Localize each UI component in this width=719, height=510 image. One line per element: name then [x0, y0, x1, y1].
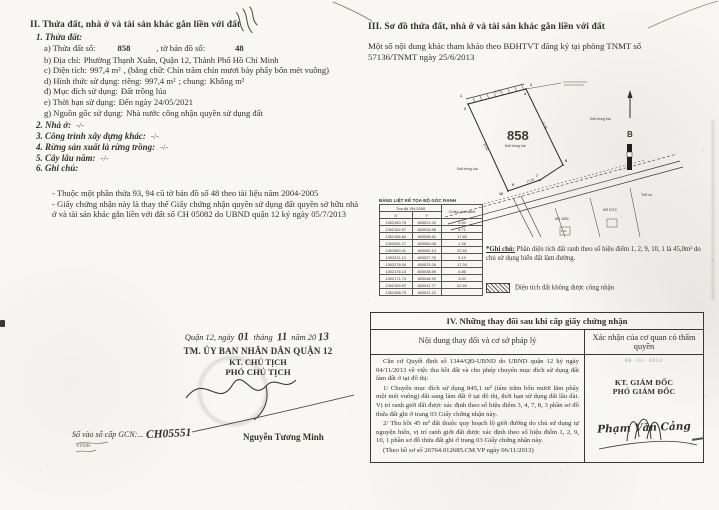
section-4-col-right-header: Xác nhận của cơ quan có thẩm quyền [585, 330, 703, 354]
field-label-2: , (bằng chữ: Chín trăm chín mươi bảy phẩ… [124, 65, 329, 75]
change-content-cell: Căn cứ Quyết định số 1344/QĐ-UBND do UBN… [371, 355, 585, 462]
field-line: b) Địa chỉ:Phường Thạnh Xuân, Quận 12, T… [44, 55, 362, 66]
subsection-line: 3. Công trình xây dựng khác:-/- [36, 131, 362, 142]
coord-y: 600041.77 [412, 282, 442, 289]
change-paragraph: (Theo hồ sơ số 26764.012685.CM.VP ngày 0… [376, 447, 579, 456]
map-sheet-label: , tờ bản đồ số: [156, 43, 205, 53]
subsection-value: -/- [160, 142, 168, 152]
field-value: 997,4 m² [145, 76, 176, 86]
note-line: - Thuộc một phần thửa 93, 94 cũ tờ bản đ… [52, 188, 362, 198]
section-3-intro: Một số nội dung khác tham khảo theo BĐHT… [368, 41, 688, 63]
coord-x: 1302168.75 [380, 289, 413, 296]
field-label-2: ; chung: [179, 76, 207, 86]
coords-row: 1302168.75 600021.23 [380, 289, 483, 296]
north-arrow-icon [628, 90, 633, 118]
coord-x: 1302169.92 [380, 282, 413, 289]
subsection-label: 4. Rừng sản xuất là rừng trồng: [36, 142, 155, 152]
neighbor-left-label: Đất trồng lúa [457, 167, 478, 171]
change-paragraph: Căn cứ Quyết định số 1344/QĐ-UBND do UBN… [376, 358, 579, 384]
coord-y: 600062.13 [412, 247, 442, 254]
authority-cell: 06 -11- 2013 KT. GIÁM ĐỐC PHÓ GIÁM ĐỐC P… [585, 355, 703, 462]
coords-row: 1302176.13 600038.59 5.86 [380, 268, 483, 275]
subsections: 2. Nhà ở:-/- 3. Công trình xây dựng khác… [36, 120, 362, 174]
coordinates-table: Tọa độ VN-2000 Chiều dài cạnh X Y 130216… [379, 204, 483, 296]
tho-cu-label: Thổ cư [641, 193, 653, 197]
field-value: Đất trồng lúa [121, 86, 166, 96]
subsection-value: -/- [101, 153, 109, 163]
coord-y: 600063.08 [412, 240, 442, 247]
hatched-strip [466, 84, 526, 104]
plot-fields: b) Địa chỉ:Phường Thạnh Xuân, Quận 12, T… [44, 55, 362, 119]
subsection-line: 2. Nhà ở:-/- [36, 120, 362, 131]
edge-length: 22.50 [442, 282, 483, 289]
authority-role: PHÓ GIÁM ĐỐC [585, 387, 703, 396]
handwritten-day: 01 [238, 331, 250, 344]
diagram-note-label: *Ghi chú: [486, 246, 515, 253]
svg-text:8: 8 [565, 159, 567, 163]
edge-length-left: 22.50 [482, 143, 489, 152]
handwritten-year: 13 [318, 331, 330, 344]
coord-y: 600021.33 [412, 219, 442, 226]
coord-y: 600028.58 [412, 226, 442, 233]
section-3: III. Sơ đồ thửa đất, nhà ở và tài sản kh… [368, 22, 712, 63]
field-value-2: Không m² [210, 76, 245, 86]
coords-length-header: Chiều dài cạnh [442, 205, 483, 219]
gcn-book-line: Số vào sổ cấp GCN:...CH05551 [72, 428, 192, 440]
coord-x: 1302162.57 [380, 226, 413, 233]
plot-number-label: a) Thửa đất số: [44, 43, 96, 53]
coord-x: 1302081.17 [380, 240, 413, 247]
coord-y: 600058.62 [412, 233, 442, 240]
diagram-legend: Diện tích đất không được công nhận [486, 283, 614, 293]
subsection-label: 6. Ghi chú: [36, 163, 78, 173]
field-label: d) Hình thức sử dụng: riêng: [44, 76, 142, 86]
subsection-label: 2. Nhà ở: [36, 120, 71, 130]
illegible-annotation [526, 82, 587, 89]
edge-length: 5.86 [442, 268, 483, 275]
coords-row: 1302083.41 600062.13 22.50 [380, 247, 483, 254]
coord-x: 1302176.13 [380, 268, 413, 275]
edge-length: 6.71 [442, 226, 483, 233]
field-label: đ) Mục đích sử dụng: [44, 86, 118, 96]
coord-x: 1302278.04 [380, 261, 413, 268]
edge-length: 1.26 [442, 240, 483, 247]
coord-x: 1302160.75 [380, 219, 413, 226]
coords-row: 1302278.04 600023.26 17.34 [380, 261, 483, 268]
svg-text:9: 9 [512, 183, 514, 187]
svg-text:10: 10 [499, 192, 503, 196]
month-label: tháng [254, 333, 273, 342]
field-line: e) Thời hạn sử dụng:Đến ngày 24/05/2021 [44, 97, 362, 108]
coord-y: 600027.76 [412, 254, 442, 261]
notes: - Thuộc một phần thửa 93, 94 cũ tờ bản đ… [52, 188, 362, 219]
coords-row: 1302081.17 600063.08 1.26 [380, 240, 483, 247]
subsection-label: 5. Cây lâu năm: [36, 153, 96, 163]
field-line: c) Diện tích:997,4 m², (bằng chữ: Chín t… [44, 65, 362, 76]
handwritten-month: 11 [276, 331, 287, 344]
coords-y-header: Y [412, 212, 442, 219]
section-4-title: IV. Những thay đổi sau khi cấp giấy chứn… [371, 313, 703, 330]
edge-length: 22.50 [442, 247, 483, 254]
house-label: 1 hộ [561, 229, 567, 233]
plot-heading: 1. Thửa đất: [36, 32, 362, 42]
kt-line: KT. CHỦ TỊCH [148, 358, 368, 367]
coords-row: 1302171.74 600048.93 3.00 [380, 275, 483, 282]
coord-y: 600038.59 [412, 268, 442, 275]
change-paragraph: 2/ Thu hồi 45 m² đất thuộc quy hoạch lộ … [376, 420, 579, 446]
committee-name: TM. ỦY BAN NHÂN DÂN QUẬN 12 [148, 346, 368, 356]
plot-number-value: 858 [118, 43, 131, 53]
plot-number-line: a) Thửa đất số:858, tờ bản đồ số:48 [44, 43, 362, 54]
svg-text:2: 2 [530, 83, 532, 87]
scan-speckles [0, 0, 1, 1]
note-line: - Giấy chứng nhận này là thay thế Giấy c… [52, 199, 362, 220]
hatch-swatch-icon [486, 283, 510, 293]
field-value: Nhà nước công nhận quyền sử dụng đất [126, 108, 263, 118]
field-label: b) Địa chỉ: [44, 55, 81, 65]
edge-mark-artifact [0, 320, 5, 327]
year-label: năm 20 [291, 333, 316, 342]
section-3-title: III. Sơ đồ thửa đất, nhà ở và tài sản kh… [368, 22, 712, 32]
subsection-line: 6. Ghi chú: [36, 163, 362, 174]
edge-length: 5.19 [442, 254, 483, 261]
subsection-label: 3. Công trình xây dựng khác: [36, 131, 146, 141]
edge-length [442, 289, 483, 296]
edge-length-top: 6.71 [494, 88, 501, 94]
field-line: g) Nguồn gốc sử dụng:Nhà nước công nhận … [44, 108, 362, 119]
field-line: đ) Mục đích sử dụng:Đất trồng lúa [44, 86, 362, 97]
svg-text:1: 1 [460, 94, 462, 98]
diagram-note: *Ghi chú: Phần diện tích đất ranh theo s… [486, 246, 712, 263]
svg-text:4: 4 [524, 92, 526, 96]
coordinates-table-title: BẢNG LIỆT KÊ TỌA ĐỘ GÓC RANH [379, 198, 483, 203]
clerk-note: VPĐK [76, 443, 91, 450]
scanned-land-certificate-page: II. Thửa đất, nhà ở và tài sản khác gắn … [0, 0, 719, 510]
authority-kt: KT. GIÁM ĐỐC [585, 378, 703, 387]
coords-x-header: X [380, 212, 413, 219]
coords-row: 1302169.92 600041.77 22.50 [380, 282, 483, 289]
neighbor-right-label: Đất trồng lúa [590, 117, 611, 121]
authority-stamp-date: 06 -11- 2013 [585, 359, 703, 364]
svg-text:3: 3 [464, 107, 466, 111]
field-value: 997,4 m² [90, 65, 121, 75]
place-label: Quận 12, ngày [185, 333, 235, 342]
edge-length: 2.00 [442, 219, 483, 226]
legend-text: Diện tích đất không được công nhận [515, 285, 614, 292]
role-line: PHÓ CHỦ TỊCH [148, 367, 368, 377]
coord-y: 600048.93 [412, 275, 442, 282]
field-line: d) Hình thức sử dụng: riêng:997,4 m²; ch… [44, 76, 362, 87]
field-label: e) Thời hạn sử dụng: [44, 97, 116, 107]
coords-row: 1302160.75 600021.33 2.00 [380, 219, 483, 226]
subsection-line: 4. Rừng sản xuất là rừng trồng:-/- [36, 142, 362, 153]
edge-length-right: 17.34 [541, 121, 548, 130]
scale-bar [627, 144, 632, 170]
coord-x: 1302211.12 [380, 254, 413, 261]
edge-length: 3.00 [442, 275, 483, 282]
ms1853-label: MS 1853 [555, 217, 569, 221]
field-label: g) Nguồn gốc sử dụng: [44, 108, 123, 118]
coords-group-header: Tọa độ VN-2000 [380, 205, 442, 212]
coord-y: 600023.26 [412, 261, 442, 268]
section-4-table: IV. Những thay đổi sau khi cấp giấy chứn… [370, 312, 704, 463]
date-line: Quận 12, ngày 01 tháng 11 năm 2013 [148, 331, 368, 343]
parcel-number-label: 858 [507, 128, 529, 143]
issuer-block: Quận 12, ngày 01 tháng 11 năm 2013 TM. Ủ… [148, 331, 368, 377]
coord-y: 600021.23 [412, 289, 442, 296]
section-2: II. Thửa đất, nhà ở và tài sản khác gắn … [30, 20, 362, 219]
field-value: Phường Thạnh Xuân, Quận 12, Thành Phố Hồ… [84, 55, 279, 65]
right-edge-streak [712, 120, 714, 300]
subsection-line: 5. Cây lâu năm:-/- [36, 153, 362, 164]
svg-text:7: 7 [536, 174, 538, 178]
change-paragraph: 1/ Chuyển mục đích sử dụng 845,1 m² (tám… [376, 385, 579, 419]
north-label: B [627, 130, 633, 139]
gcn-book-label: Số vào sổ cấp GCN:... [72, 430, 143, 439]
coord-x: 1302166.84 [380, 233, 413, 240]
coord-x: 1302083.41 [380, 247, 413, 254]
subsection-value: -/- [151, 131, 159, 141]
subsection-value: -/- [76, 120, 84, 130]
edge-length: 17.60 [442, 233, 483, 240]
coord-x: 1302171.74 [380, 275, 413, 282]
field-value: Đến ngày 24/05/2021 [119, 97, 193, 107]
coords-row: 1302166.84 600058.62 17.60 [380, 233, 483, 240]
gcn-book-number: CH05551 [146, 427, 192, 441]
chairman-name: Nguyễn Tương Minh [243, 432, 324, 442]
map-sheet-value: 48 [235, 43, 244, 53]
ms6713-label: MS 6713 [603, 208, 617, 212]
coords-row: 1302162.57 600028.58 6.71 [380, 226, 483, 233]
coords-row: 1302211.12 600027.76 5.19 [380, 254, 483, 261]
field-label: c) Diện tích: [44, 65, 87, 75]
parcel-use-label: Đất trồng lúa [505, 144, 526, 148]
coordinates-table-block: BẢNG LIỆT KÊ TỌA ĐỘ GÓC RANH Tọa độ VN-2… [379, 198, 483, 296]
section-4-col-left-header: Nội dung thay đổi và cơ sở pháp lý [371, 330, 585, 354]
edge-length: 17.34 [442, 261, 483, 268]
section-2-title: II. Thửa đất, nhà ở và tài sản khác gắn … [30, 20, 362, 30]
diagram-note-text: Phần diện tích đất ranh theo số hiệu điể… [486, 246, 701, 262]
